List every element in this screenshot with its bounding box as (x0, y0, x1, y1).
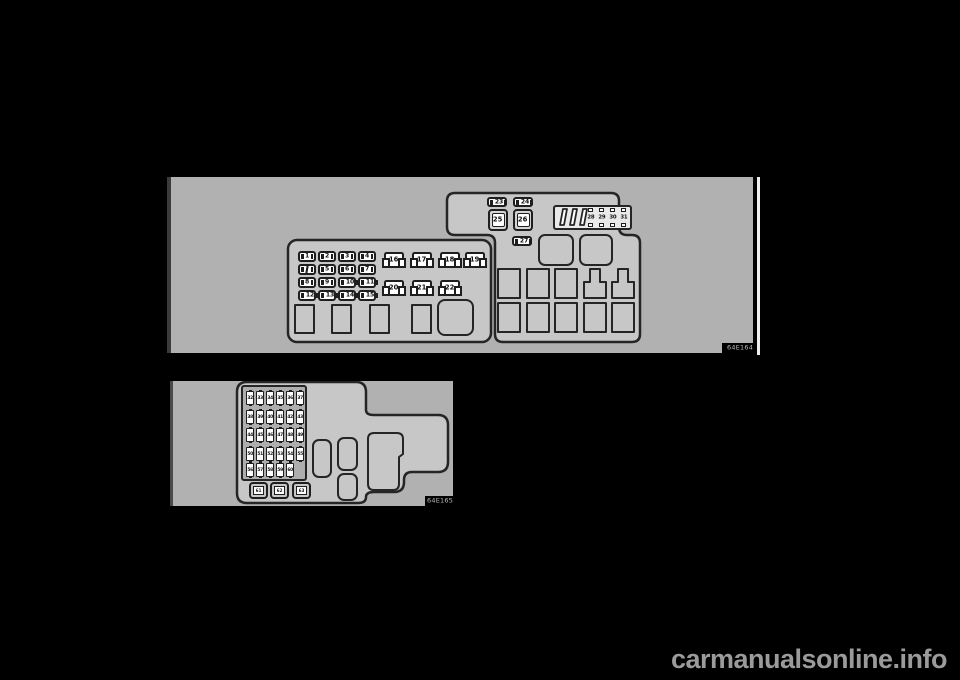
fuse-38: 38 (246, 410, 254, 424)
fuse-10: 10 (338, 277, 356, 288)
site-watermark: carmanualsonline.info (671, 644, 947, 675)
connector-slot (338, 474, 357, 500)
fuse-54: 54 (286, 447, 294, 461)
fuse-45: 45 (256, 428, 264, 442)
fuse-6: 6 (338, 264, 356, 275)
fuse-59: 59 (276, 463, 284, 477)
fuse-32: 32 (246, 391, 254, 405)
fuse-50: 50 (246, 447, 254, 461)
connector-slot (338, 438, 357, 470)
fuse-53: 53 (276, 447, 284, 461)
fuse-20: 20 (384, 280, 404, 296)
fuse-63: 63 (292, 482, 311, 499)
fuse-blank (298, 264, 316, 275)
fuse-30: 30 (607, 208, 618, 227)
fuse-41: 41 (276, 410, 284, 424)
figure-code-label: 64E164 (722, 343, 758, 354)
fuse-9: 9 (318, 277, 336, 288)
fuse-62: 62 (270, 482, 289, 499)
fuse-28: 28 (585, 208, 596, 227)
fuse-57: 57 (256, 463, 264, 477)
interior-fusebox-drawing (173, 381, 456, 506)
fuse-40: 40 (266, 410, 274, 424)
connector-slot (313, 440, 331, 477)
fuse-47: 47 (276, 428, 284, 442)
fuse-26: 26 (513, 209, 533, 231)
fuse-31: 31 (618, 208, 629, 227)
fuse-39: 39 (256, 410, 264, 424)
fuse-2: 2 (318, 251, 336, 262)
fuse-11: 11 (358, 277, 376, 288)
fuse-43: 43 (296, 410, 304, 424)
fuse-51: 51 (256, 447, 264, 461)
fuse-44: 44 (246, 428, 254, 442)
fuse-19: 19 (465, 252, 485, 268)
fuse-13: 13 (318, 290, 336, 301)
fuse-37: 37 (296, 391, 304, 405)
fuse-1: 1 (298, 251, 316, 262)
panel-highlight-edge (757, 177, 760, 355)
fuse-60: 60 (286, 463, 294, 477)
fuse-23: 23 (487, 197, 507, 207)
connector-block (368, 433, 403, 490)
fuse-18: 18 (440, 252, 460, 268)
fuse-8: 8 (298, 277, 316, 288)
interior-fusebox-figure: 32 33 34 35 36 37 38 39 40 41 42 43 44 4… (170, 381, 453, 506)
fuse-52: 52 (266, 447, 274, 461)
fuse-4: 4 (358, 251, 376, 262)
fuse-46: 46 (266, 428, 274, 442)
figure-code-label: 64E165 (425, 496, 456, 507)
fuse-55: 55 (296, 447, 304, 461)
fuse-29: 29 (596, 208, 607, 227)
fuse-56: 56 (246, 463, 254, 477)
fuse-21: 21 (412, 280, 432, 296)
fuse-24: 24 (513, 197, 533, 207)
manual-page: 1 2 3 4 5 6 7 8 9 10 11 12 13 14 15 16 1… (0, 0, 960, 680)
fuse-22: 22 (440, 280, 460, 296)
fuse-12: 12 (298, 290, 316, 301)
fuse-5: 5 (318, 264, 336, 275)
fuse-3: 3 (338, 251, 356, 262)
fuse-49: 49 (296, 428, 304, 442)
fuse-25: 25 (488, 209, 508, 231)
fuse-36: 36 (286, 391, 294, 405)
fuse-14: 14 (338, 290, 356, 301)
fuse-27: 27 (512, 236, 532, 246)
fuse-61: 61 (249, 482, 268, 499)
fuse-33: 33 (256, 391, 264, 405)
fuse-34: 34 (266, 391, 274, 405)
fuse-15: 15 (358, 290, 376, 301)
fuse-17: 17 (412, 252, 432, 268)
fuse-42: 42 (286, 410, 294, 424)
engine-fusebox-figure: 1 2 3 4 5 6 7 8 9 10 11 12 13 14 15 16 1… (167, 177, 753, 353)
fuse-58: 58 (266, 463, 274, 477)
fuse-48: 48 (286, 428, 294, 442)
fuse-35: 35 (276, 391, 284, 405)
fuse-16: 16 (384, 252, 404, 268)
fuse-7: 7 (358, 264, 376, 275)
